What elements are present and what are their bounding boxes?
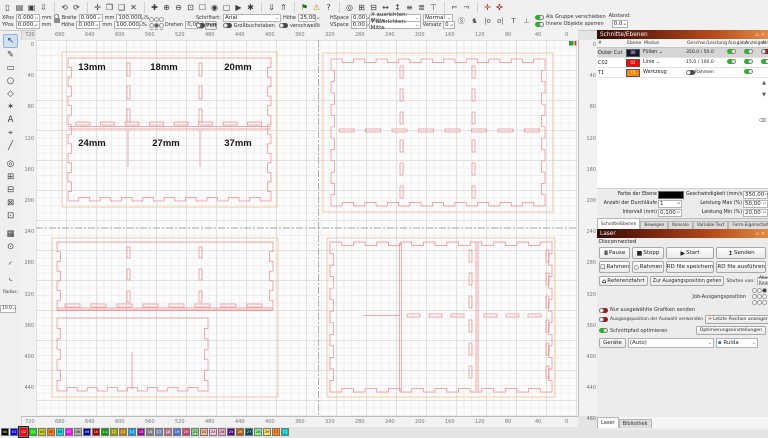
settings-icon[interactable]: ✱ <box>245 2 256 13</box>
ungroup-icon[interactable]: ⊟ <box>368 2 379 13</box>
group-properties: Ⓢ♞|oo|T⊥ Als Gruppe verschieben Innere O… <box>456 13 631 28</box>
palette-swatch-29[interactable]: 29 <box>263 428 271 436</box>
yalign-select[interactable]: Y ausrichten: Mitte⌄ <box>369 21 421 29</box>
scale-y-field[interactable]: 100.000▴▾ <box>114 21 140 29</box>
passes-label: Anzahl der Durchläufe <box>598 201 657 206</box>
radius-label: Radius: <box>0 289 21 294</box>
toolbar-separator <box>335 2 340 13</box>
ruler-label: 280 <box>586 260 596 266</box>
cut-slot[interactable] <box>400 186 403 198</box>
palette-swatch-21[interactable]: 21 <box>191 428 199 436</box>
palette-swatch-03[interactable]: 03 <box>29 428 37 436</box>
tab-konsole[interactable]: Konsole <box>668 221 693 229</box>
tab-bibliothek[interactable]: Bibliothek <box>619 419 652 428</box>
cut-slot[interactable] <box>429 314 442 317</box>
anzeigen-toggle[interactable] <box>744 59 753 64</box>
distribute-v-icon[interactable]: o| <box>495 15 506 26</box>
send-selected-label: Nur ausgewählte Grafiken senden <box>610 307 695 313</box>
dock-left-icon[interactable]: ⌐ <box>449 2 460 13</box>
cut-slot[interactable] <box>498 129 513 132</box>
boolean-subtract-tool[interactable]: ⊟ <box>4 184 17 196</box>
vspace-label: VSpace <box>330 22 349 28</box>
frame-rect-button[interactable]: ☐Rahmen <box>599 261 630 273</box>
cut-slot[interactable] <box>392 129 407 132</box>
paste-icon[interactable]: ❑ <box>116 2 127 13</box>
palette-swatch-08[interactable]: 08 <box>74 428 82 436</box>
design-layer: 13mm18mm20mm24mm27mm37mm <box>36 40 578 416</box>
palette-swatch-10[interactable]: 10 <box>92 428 100 436</box>
uppercase-toggle[interactable] <box>223 23 232 28</box>
mirror-horizontal-icon[interactable]: ↔ <box>380 2 391 13</box>
file-open-icon[interactable]: ▤ <box>14 2 25 13</box>
rd-save-button[interactable]: RD file speichern <box>666 261 715 273</box>
cut-slot[interactable] <box>125 122 139 125</box>
cut-slot[interactable] <box>445 129 460 132</box>
air-toggle[interactable] <box>761 49 768 54</box>
zoom-selection-icon[interactable]: ⊡ <box>185 2 196 13</box>
layer-name: C02 <box>597 60 626 66</box>
line-tool[interactable]: ╱ <box>4 140 17 152</box>
weld-toggle[interactable] <box>279 23 288 28</box>
user-origin-icon[interactable]: ⇑ <box>278 2 289 13</box>
device-auto-select[interactable]: (Auto)⌄ <box>628 338 714 348</box>
ypos-field[interactable]: 0.000▴▾ <box>16 21 40 29</box>
abstand-field[interactable]: 0.0▴▾ <box>612 20 628 28</box>
offset-tool[interactable]: ◎ <box>4 158 17 170</box>
radius-field[interactable]: 10.0▴▾ <box>0 305 16 313</box>
move-v-icon[interactable]: ✜ <box>494 2 505 13</box>
ruler-label: 480 <box>205 419 215 425</box>
palette-swatch-02[interactable]: 02 <box>19 427 28 437</box>
tab-variable-text[interactable]: Variable Text <box>693 221 728 229</box>
panel-float-icon[interactable]: ▫ <box>755 32 758 38</box>
layer-color-chip[interactable]: 02 <box>626 59 640 67</box>
layer-mode-select[interactable]: Linie ⌄ <box>643 60 686 65</box>
palette-swatch-T2[interactable]: T2 <box>281 428 289 436</box>
cut-slot[interactable] <box>101 122 115 125</box>
ruler-label: 40 <box>590 73 596 79</box>
air-toggle[interactable] <box>761 59 768 64</box>
dock-bottom-tabs: LaserBibliothek <box>597 417 768 428</box>
cut-slot[interactable] <box>223 122 237 125</box>
ypos-label: YPos <box>2 22 14 28</box>
layer-speed-value: 350.0 / 50.0 <box>686 50 727 55</box>
circular-array-tool[interactable]: ⊙ <box>4 241 17 253</box>
cut-slot[interactable] <box>248 122 262 125</box>
ruler-label: 640 <box>85 32 95 38</box>
undo-icon[interactable]: ⟲ <box>59 2 70 13</box>
width-label: Breite <box>62 15 77 21</box>
ruler-label: 680 <box>55 32 65 38</box>
optimization-settings-button[interactable]: Optimierungseinstellungen <box>696 326 766 335</box>
tab-form-eigenschaften[interactable]: Form-Eigenschaften <box>728 221 768 229</box>
cut-slot[interactable] <box>91 304 106 307</box>
show-origin-icon[interactable]: ◎ <box>344 2 355 13</box>
cut-slot[interactable] <box>528 314 541 317</box>
palette-swatch-01[interactable]: 01 <box>10 428 18 436</box>
move-h-icon[interactable]: ✛ <box>482 2 493 13</box>
column-header: Anzeigen <box>744 41 761 46</box>
rahmen-toggle[interactable] <box>686 70 695 75</box>
panel-close-icon[interactable]: ✕ <box>761 231 765 237</box>
palette-swatch-15[interactable]: 15 <box>137 428 145 436</box>
camera-icon[interactable]: ◉ <box>209 2 220 13</box>
ausgabe-toggle[interactable] <box>727 59 736 64</box>
file-new-icon[interactable]: ▯ <box>2 2 13 13</box>
layer-color-chip[interactable]: 00 <box>626 49 640 57</box>
cut-slot[interactable] <box>199 269 202 280</box>
pause-button[interactable]: ⅡPause <box>599 247 630 259</box>
palette-swatch-23[interactable]: 23 <box>209 428 217 436</box>
palette-swatch-05[interactable]: 05 <box>47 428 55 436</box>
grid-array-tool[interactable]: ▦ <box>4 228 17 240</box>
speed-field[interactable]: 350,00▴▾ <box>743 191 768 199</box>
cut-slot[interactable] <box>472 163 475 175</box>
cut-slot[interactable] <box>199 291 202 302</box>
stop-button[interactable]: ■Stopp <box>632 247 663 259</box>
ruler-label: 480 <box>586 416 596 422</box>
palette-swatch-16[interactable]: 16 <box>146 428 154 436</box>
layer-row-02[interactable]: C0202Linie ⌄15.0 / 100.0 <box>597 58 768 68</box>
ruler-label: 240 <box>586 229 596 235</box>
outer-cut-rect[interactable] <box>327 238 555 397</box>
cut-slot[interactable] <box>472 186 475 198</box>
start-button[interactable]: ▶Start <box>666 247 715 259</box>
ruler-label: 0 <box>565 32 568 38</box>
bold-toggle[interactable] <box>196 23 205 28</box>
tab-schnitte-ebenen[interactable]: Schnitte/Ebenen <box>597 218 640 229</box>
zoom-out-icon[interactable]: ⊖ <box>173 2 184 13</box>
laser-head-icon[interactable]: ♞ <box>469 15 480 26</box>
ruler-label: 40 <box>535 419 541 425</box>
power-min-field[interactable]: 20,00▴▾ <box>743 209 768 217</box>
screen-icon[interactable]: ▢ <box>221 2 232 13</box>
palette-swatch-26[interactable]: 26 <box>236 428 244 436</box>
redo-icon[interactable]: ⟳ <box>71 2 82 13</box>
job-origin-grid[interactable] <box>752 288 766 305</box>
passes-field[interactable]: 1▴▾ <box>658 200 682 208</box>
ruler-label: 560 <box>145 32 155 38</box>
outer-cut-rect[interactable] <box>62 52 277 207</box>
use-selection-origin-toggle[interactable] <box>599 317 608 322</box>
layer-down-button[interactable]: ▼ <box>762 92 766 98</box>
ruler-label: 680 <box>55 419 65 425</box>
outer-cut-rect[interactable] <box>52 238 278 397</box>
frame-selection-icon[interactable]: ☐ <box>197 2 208 13</box>
rd-run-button[interactable]: RD file ausführen <box>716 261 766 273</box>
panel-float-icon[interactable]: ▫ <box>755 231 758 237</box>
tab-bewegen[interactable]: Bewegen <box>640 221 668 229</box>
ruler-label: 280 <box>24 260 34 266</box>
mirror-vertical-icon[interactable]: ↕ <box>392 2 403 13</box>
uppercase-label: Großbuchstaben <box>234 23 275 29</box>
ruler-label: 200 <box>415 419 425 425</box>
palette-swatch-20[interactable]: 20 <box>182 428 190 436</box>
cut-slot[interactable] <box>400 112 403 124</box>
delete-icon[interactable]: ✕ <box>128 2 139 13</box>
start-from-select[interactable]: Absolute Koordinaten⌄ <box>757 277 768 285</box>
boolean-union-tool[interactable]: ⊞ <box>4 171 17 183</box>
palette-swatch-09[interactable]: 09 <box>83 428 91 436</box>
cut-slot[interactable] <box>366 129 381 132</box>
controller-select[interactable]: ▪ Ruida⌄ <box>716 338 758 348</box>
xpos-label: XPos <box>2 15 14 21</box>
main-toolbar: ▯▤▣⇩⟲⟳✛❐❑✕✚⊕⊖⊡☐◉▢▶✱⇓⇑⚑⚠?◎⊞⊟↔↕≡≣⊤⌐¬✛✜ XPo… <box>0 0 768 31</box>
cut-slot[interactable] <box>472 112 475 124</box>
interval-field[interactable]: 0,100▴▾ <box>658 209 682 217</box>
cut-slot[interactable] <box>400 89 403 101</box>
palette-swatch-28[interactable]: 28 <box>254 428 262 436</box>
align-center-icon[interactable]: ≣ <box>416 2 427 13</box>
layer-row-T1[interactable]: T1T1Werkzeug Rahmen <box>597 68 768 78</box>
layer-color-chip[interactable]: T1 <box>626 69 640 77</box>
cut-slot[interactable] <box>199 63 202 76</box>
cut-slot[interactable] <box>339 129 354 132</box>
job-origin-radio[interactable] <box>762 300 767 305</box>
layer-up-button[interactable]: ▲ <box>762 80 766 86</box>
ruler-label: 440 <box>24 385 34 391</box>
cut-slot[interactable] <box>506 314 519 317</box>
palette-swatch-11[interactable]: 11 <box>101 428 109 436</box>
align-top-icon[interactable]: ⊤ <box>428 2 439 13</box>
cut-slot[interactable] <box>195 304 210 307</box>
interval-label: Intervall (mm) <box>598 210 657 215</box>
palette-swatch-06[interactable]: 06 <box>56 428 64 436</box>
align-left-icon[interactable]: ≡ <box>404 2 415 13</box>
distribute-h-icon[interactable]: |o <box>482 15 493 26</box>
ellipse-tool[interactable]: ○ <box>4 75 17 87</box>
position-tool[interactable]: ⌖ <box>4 127 17 139</box>
layer-mode-select[interactable]: Werkzeug <box>643 70 686 75</box>
rectangle-tool[interactable]: ▭ <box>4 62 17 74</box>
ruler-label: 80 <box>505 32 511 38</box>
font-select[interactable]: Arial⌄ <box>223 14 281 22</box>
ruler-label: 360 <box>586 323 596 329</box>
machine-origin-marker[interactable] <box>569 41 574 46</box>
laser-panel-titlebar[interactable]: Laser ▫✕ <box>597 229 768 238</box>
cut-slot[interactable] <box>199 109 202 122</box>
group-icon[interactable]: ⊞ <box>356 2 367 13</box>
workspace-canvas[interactable]: 13mm18mm20mm24mm27mm37mm <box>36 40 578 416</box>
cut-slot[interactable] <box>143 304 158 307</box>
cut-slot[interactable] <box>127 269 130 280</box>
palette-swatch-19[interactable]: 19 <box>173 428 181 436</box>
lock-inner-toggle[interactable] <box>535 22 544 27</box>
cut-slot[interactable] <box>127 109 130 122</box>
palette-swatch-07[interactable]: 07 <box>65 428 73 436</box>
cut-slot[interactable] <box>127 247 130 258</box>
toolbar-separator <box>140 2 145 13</box>
corner-tool-a[interactable]: ◜ <box>4 259 17 271</box>
abstand-label: Abstand: <box>609 13 631 19</box>
align-bottom-icon[interactable]: ⊥ <box>521 15 532 26</box>
ruler-label: 400 <box>265 419 275 425</box>
ruler-label: 440 <box>586 385 596 391</box>
zoom-in-icon[interactable]: ⊕ <box>161 2 172 13</box>
power-max-field[interactable]: 50,00▴▾ <box>743 200 768 208</box>
cut-slot[interactable] <box>199 86 202 99</box>
font-height-field[interactable]: 25,00▴▾ <box>298 14 316 22</box>
outer-cut-rect[interactable] <box>323 53 553 212</box>
send-selected-toggle[interactable] <box>599 308 608 313</box>
palette-swatch-25[interactable]: 25 <box>227 428 235 436</box>
cut-slot[interactable] <box>407 314 420 317</box>
panel-outline[interactable] <box>68 58 271 201</box>
cut-slot[interactable] <box>469 366 472 378</box>
dock-right-icon[interactable]: ¬ <box>461 2 472 13</box>
width-unit: mm <box>105 15 115 21</box>
panel-close-icon[interactable]: ✕ <box>761 32 765 38</box>
aspect-lock-icon[interactable] <box>54 18 60 23</box>
cut-slot[interactable] <box>247 304 262 307</box>
cut-slot[interactable] <box>169 304 184 307</box>
ruler-label: 360 <box>295 32 305 38</box>
cut-slot[interactable] <box>127 291 130 302</box>
palette-swatch-T1[interactable]: T1 <box>272 428 280 436</box>
ruler-label: 600 <box>115 419 125 425</box>
frame-circle-button[interactable]: ○Rahmen <box>632 261 663 273</box>
versatz-field[interactable]: 0▴▾ <box>443 21 455 29</box>
cut-slot[interactable] <box>400 66 403 78</box>
cut-slot[interactable] <box>451 314 464 317</box>
ruler-label: 280 <box>355 419 365 425</box>
toolbar-separator <box>290 2 295 13</box>
cut-slot[interactable] <box>199 247 202 258</box>
cut-slot[interactable] <box>65 304 80 307</box>
laser-position-marker[interactable] <box>575 41 577 46</box>
panel-outline[interactable] <box>331 59 545 206</box>
cut-slot[interactable] <box>484 314 497 317</box>
panel-outline[interactable] <box>57 318 208 391</box>
ruler-label: 40 <box>535 32 541 38</box>
job-origin-radio[interactable] <box>762 294 767 299</box>
corner-tool-b[interactable]: ◟ <box>4 272 17 284</box>
layer-delete-button[interactable]: ⌫ <box>759 118 766 124</box>
file-save-icon[interactable]: ▣ <box>26 2 37 13</box>
cut-slot[interactable] <box>472 140 475 152</box>
zoom-plus-icon[interactable]: ✚ <box>149 2 160 13</box>
palette-swatch-14[interactable]: 14 <box>128 428 136 436</box>
cut-slot[interactable] <box>221 304 236 307</box>
send-button[interactable]: ↥Senden <box>716 247 766 259</box>
show-last-position-button[interactable]: ✛Letzte Position anzeigen <box>705 315 768 324</box>
ruler-label: 520 <box>175 32 185 38</box>
cut-slot[interactable] <box>199 122 213 125</box>
cut-slot[interactable] <box>127 86 130 99</box>
star-tool[interactable]: ✶ <box>4 101 17 113</box>
cut-slot[interactable] <box>469 296 472 308</box>
cut-slot[interactable] <box>469 273 472 285</box>
cut-slot[interactable] <box>117 304 132 307</box>
ruler-label: 640 <box>85 419 95 425</box>
ruler-label: 40 <box>28 73 34 79</box>
devices-button[interactable]: Geräte <box>599 338 626 348</box>
warning-icon[interactable]: ⚠ <box>311 2 322 13</box>
boolean-difference-tool[interactable]: ⊡ <box>4 210 17 222</box>
ausgabe-toggle[interactable] <box>727 49 736 54</box>
file-import-icon[interactable]: ⇩ <box>38 2 49 13</box>
move-icon[interactable]: ✛ <box>92 2 103 13</box>
cut-slot[interactable] <box>419 129 434 132</box>
layer-color-swatch[interactable] <box>658 191 684 199</box>
cut-slot[interactable] <box>76 122 90 125</box>
palette-swatch-12[interactable]: 12 <box>110 428 118 436</box>
cut-slot[interactable] <box>400 140 403 152</box>
job-origin-radio[interactable] <box>762 288 767 293</box>
boolean-intersect-tool[interactable]: ⊠ <box>4 197 17 209</box>
vspace-field[interactable]: 0,00▴▾ <box>351 21 367 29</box>
layer-row-00[interactable]: Outer Cut00Füllen ⌄350.0 / 50.0 <box>597 48 768 58</box>
cut-slot[interactable] <box>127 63 130 76</box>
cut-slot[interactable] <box>472 129 487 132</box>
palette-swatch-00[interactable]: 00 <box>1 428 9 436</box>
panel-outline[interactable] <box>57 242 273 310</box>
ruler-label: 240 <box>385 419 395 425</box>
palette-swatch-27[interactable]: 27 <box>245 428 253 436</box>
palette-swatch-17[interactable]: 17 <box>155 428 163 436</box>
ruler-label: 160 <box>586 167 596 173</box>
cuts-panel-titlebar[interactable]: Schnitte/Ebenen ▫✕ <box>597 30 768 39</box>
cut-slot[interactable] <box>472 89 475 101</box>
goto-origin-button[interactable]: Zur Ausgangsposition gehen <box>650 276 725 286</box>
rotate-s-icon[interactable]: Ⓢ <box>456 15 467 26</box>
cut-slot[interactable] <box>174 122 188 125</box>
ruler-label: 120 <box>475 419 485 425</box>
hspace-label: HSpace <box>330 15 349 21</box>
anzeigen-toggle[interactable] <box>744 49 753 54</box>
cuts-table-body: ▲ ▼ ⌫ <box>597 78 768 189</box>
preview-icon[interactable]: ▶ <box>233 2 244 13</box>
align-text-icon[interactable]: T <box>508 15 519 26</box>
ruler-label: 80 <box>505 419 511 425</box>
palette-swatch-04[interactable]: 04 <box>38 428 46 436</box>
layer-properties: Farbe der Ebene Geschwindigkeit (mm/s) 3… <box>597 189 768 218</box>
ruler-label: 560 <box>145 419 155 425</box>
home-button[interactable]: ⌂Referenzfahrt <box>599 276 648 286</box>
cut-slot[interactable] <box>469 320 472 332</box>
flag-icon[interactable]: ⚑ <box>299 2 310 13</box>
cut-slot[interactable] <box>400 163 403 175</box>
height-field[interactable]: 0.000▴▾ <box>76 21 100 29</box>
pen-tool[interactable]: ✎ <box>4 49 17 61</box>
anzeigen-toggle[interactable] <box>744 69 753 74</box>
cut-slot[interactable] <box>150 122 164 125</box>
layer-mode-select[interactable]: Füllen ⌄ <box>643 50 686 55</box>
palette-swatch-24[interactable]: 24 <box>218 428 226 436</box>
help-icon[interactable]: ? <box>323 2 334 13</box>
cut-slot[interactable] <box>472 66 475 78</box>
palette-swatch-22[interactable]: 22 <box>200 428 208 436</box>
cut-slot[interactable] <box>469 250 472 262</box>
select-tool[interactable]: ↖ <box>3 34 18 48</box>
layer-name: Outer Cut <box>597 50 626 56</box>
tab-laser[interactable]: Laser <box>597 417 619 428</box>
send-to-laser-icon[interactable]: ⇓ <box>266 2 277 13</box>
size-label: 27mm <box>152 138 179 149</box>
toolbar-separator <box>473 2 478 13</box>
move-as-group-toggle[interactable] <box>535 15 544 20</box>
cut-slot[interactable] <box>469 343 472 355</box>
cut-slot[interactable] <box>525 129 540 132</box>
polygon-tool[interactable]: ◇ <box>4 88 17 100</box>
optimize-path-toggle[interactable] <box>599 328 608 333</box>
copy-icon[interactable]: ❐ <box>104 2 115 13</box>
text-tool[interactable]: A <box>4 114 17 126</box>
tool-sidebar: ↖✎▭○◇✶A⌖╱◎⊞⊟⊠⊡▦⊙◜◟Radius:10.0▴▾ <box>0 31 22 438</box>
palette-swatch-13[interactable]: 13 <box>119 428 127 436</box>
column-header: # <box>597 41 626 46</box>
palette-swatch-18[interactable]: 18 <box>164 428 172 436</box>
